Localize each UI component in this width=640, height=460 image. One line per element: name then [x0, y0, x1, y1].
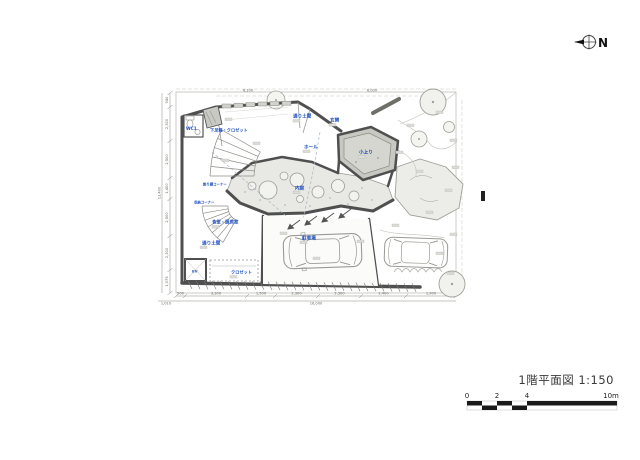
room-label-dining-kitchen: 食堂・厨房室 [212, 219, 239, 226]
shrub-row [394, 269, 442, 273]
svg-text:1,900: 1,900 [426, 292, 437, 296]
room-label-doma-bottom: 通り土間 [202, 240, 221, 247]
svg-text:6,000: 6,000 [367, 89, 378, 93]
svg-text:6,100: 6,100 [243, 89, 254, 93]
north-compass: N [574, 35, 608, 51]
closet-wedge [203, 106, 222, 128]
room-label-doma-top: 通り土間 [293, 113, 312, 120]
room-label-shelf-corner: 飾り棚コーナー [203, 182, 227, 187]
scale-tick-2: 2 [495, 392, 499, 400]
tree-icon [444, 122, 455, 133]
scale-tick-4: 4 [525, 392, 530, 400]
svg-text:940: 940 [165, 96, 169, 104]
svg-text:1,500: 1,500 [256, 292, 267, 296]
dimension-labels-left: 940 2,300 2,500 1,400 2,500 2,300 1,075 … [158, 96, 170, 287]
svg-text:16,000: 16,000 [310, 302, 323, 306]
svg-text:2,300: 2,300 [291, 292, 302, 296]
svg-text:3,300: 3,300 [211, 292, 222, 296]
svg-text:2,300: 2,300 [334, 292, 345, 296]
svg-text:2,500: 2,500 [165, 212, 169, 223]
svg-text:13,400: 13,400 [158, 186, 162, 199]
room-label-uchiniwa: 内庭 [295, 185, 305, 192]
svg-text:2,500: 2,500 [165, 154, 169, 165]
compass-north-label: N [598, 36, 608, 50]
parking-area [263, 216, 378, 286]
scale-bar: 0 2 4 10m [465, 392, 619, 410]
room-label-shoe-closet: 下足箱・クロゼット [210, 127, 248, 134]
svg-text:1,400: 1,400 [165, 183, 169, 194]
svg-text:2,300: 2,300 [165, 247, 169, 258]
room-label-wc: WC1 [186, 126, 197, 131]
svg-text:2,300: 2,300 [165, 118, 169, 129]
room-label-hall: ホール [304, 144, 318, 151]
room-label-closet: クロゼット [231, 269, 252, 276]
compass-needle-icon [574, 40, 584, 45]
benchmark-tick [481, 191, 485, 201]
svg-text:1,075: 1,075 [165, 276, 169, 286]
dimension-labels-bottom: 500 3,300 1,500 2,300 2,300 2,400 1,900 … [161, 292, 437, 306]
scale-tick-10: 10m [603, 392, 619, 400]
svg-text:500: 500 [177, 292, 185, 296]
room-label-genkan: 玄関 [330, 117, 340, 124]
dimension-lines-bottom [158, 294, 458, 301]
room-label-koagari: 小上り [359, 149, 373, 156]
scale-tick-0: 0 [465, 392, 469, 400]
svg-text:1,010: 1,010 [161, 302, 172, 306]
drawing-title: 1階平面図 1:150 [414, 372, 614, 388]
room-label-elevator: EV [192, 269, 198, 274]
room-label-parking: 駐車場 [302, 235, 316, 242]
svg-text:2,400: 2,400 [378, 292, 389, 296]
room-label-storage-corner: 収納コーナー [194, 200, 215, 205]
